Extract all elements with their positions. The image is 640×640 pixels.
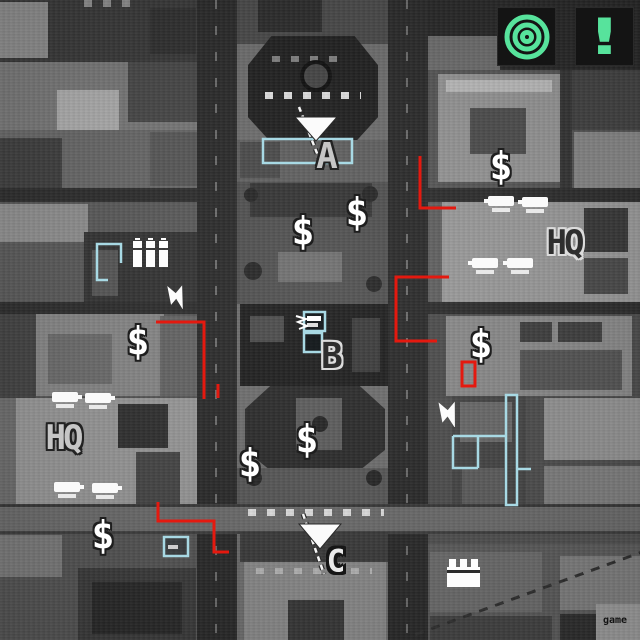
tank-unit-icon[interactable]: [468, 256, 502, 276]
watermark: game: [603, 615, 627, 626]
tank-unit-icon[interactable]: [48, 390, 82, 410]
hq-label-left[interactable]: HQ: [46, 421, 81, 455]
tank-unit-icon[interactable]: [518, 195, 552, 215]
capture-point-b-flag-icon[interactable]: [294, 314, 308, 330]
tank-unit-icon[interactable]: [484, 194, 518, 214]
capture-point-c-label[interactable]: C: [327, 547, 346, 578]
money-icon[interactable]: $: [490, 147, 513, 185]
objective-slot[interactable]: [497, 7, 556, 66]
alert-slot[interactable]: !: [575, 7, 634, 66]
hq-label-right[interactable]: HQ: [547, 226, 582, 260]
money-icon[interactable]: $: [470, 325, 493, 363]
money-icon[interactable]: $: [92, 516, 115, 554]
capture-point-b-label[interactable]: B: [321, 339, 343, 375]
tank-unit-icon[interactable]: [81, 391, 115, 411]
capture-point-a-label[interactable]: A: [316, 139, 338, 175]
lightning-bolt-icon[interactable]: [433, 397, 467, 427]
lightning-bolt-icon[interactable]: [163, 281, 193, 309]
money-icon[interactable]: $: [296, 420, 319, 458]
selection-outlines: [97, 139, 531, 556]
city-building-icon[interactable]: [133, 238, 169, 268]
money-icon[interactable]: $: [127, 322, 150, 360]
money-icon[interactable]: $: [292, 212, 315, 250]
tank-unit-icon[interactable]: [503, 256, 537, 276]
tank-unit-icon[interactable]: [88, 481, 122, 501]
money-icon[interactable]: $: [239, 444, 262, 482]
money-icon[interactable]: $: [346, 193, 369, 231]
bullseye-target-icon: [503, 13, 551, 61]
enemy-route-lines: [156, 156, 475, 552]
factory-icon[interactable]: [446, 557, 482, 589]
tank-unit-icon[interactable]: [50, 480, 84, 500]
exclamation-icon: !: [588, 12, 621, 62]
tactical-map: A B C HQ HQ $ $ $ $ $ $ $ $: [0, 0, 640, 640]
